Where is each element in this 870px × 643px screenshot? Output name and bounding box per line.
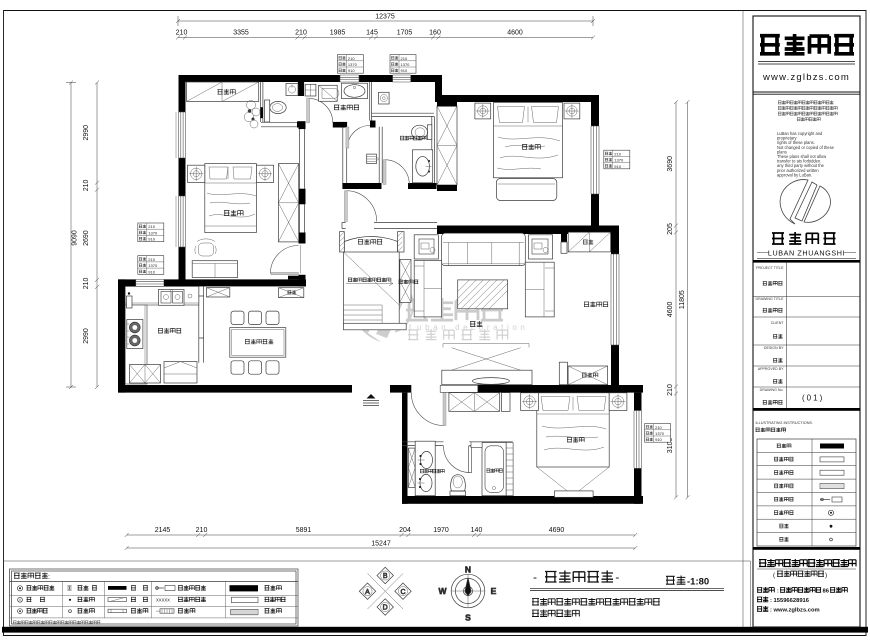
- svg-text:140: 140: [471, 527, 483, 534]
- svg-text:CLIENT: CLIENT: [771, 321, 785, 325]
- svg-text:XXXXX: XXXXX: [156, 598, 170, 603]
- svg-text:3690: 3690: [667, 156, 674, 172]
- svg-text:4600: 4600: [507, 30, 523, 37]
- svg-text:160: 160: [429, 30, 441, 37]
- svg-text:910: 910: [148, 237, 155, 242]
- svg-text:1370: 1370: [148, 263, 158, 268]
- svg-text:PROJECT TITLE: PROJECT TITLE: [756, 266, 784, 270]
- svg-text:DRAWING No.: DRAWING No.: [760, 388, 784, 392]
- svg-text:2990: 2990: [83, 125, 90, 141]
- svg-text:3355: 3355: [233, 30, 249, 37]
- svg-text:B: B: [383, 573, 388, 580]
- svg-text:2145: 2145: [155, 527, 171, 534]
- svg-text:D: D: [383, 605, 388, 612]
- svg-text:1370: 1370: [348, 62, 358, 67]
- svg-text:Luban decoration: Luban decoration: [409, 323, 528, 332]
- svg-text:N: N: [465, 565, 471, 575]
- svg-text:(01): (01): [802, 394, 824, 403]
- svg-text:210: 210: [655, 425, 662, 430]
- svg-text:210: 210: [295, 30, 307, 37]
- svg-text:2990: 2990: [83, 328, 90, 344]
- svg-text:210: 210: [196, 527, 208, 534]
- svg-text:910: 910: [148, 269, 155, 274]
- svg-text:205: 205: [667, 223, 674, 235]
- svg-text:210: 210: [401, 56, 408, 61]
- svg-text:LUBAN ZHUANGSHI: LUBAN ZHUANGSHI: [768, 249, 845, 258]
- svg-text:910: 910: [348, 68, 355, 73]
- svg-text:1370: 1370: [614, 158, 624, 163]
- svg-text:1970: 1970: [433, 527, 449, 534]
- svg-text:210: 210: [667, 384, 674, 396]
- svg-text:www.zglbzs.com: www.zglbzs.com: [762, 72, 850, 83]
- svg-text::: :: [48, 574, 50, 581]
- svg-text:910: 910: [401, 68, 408, 73]
- svg-text:9090: 9090: [72, 230, 79, 246]
- svg-text:1370: 1370: [655, 431, 665, 436]
- svg-text:210: 210: [148, 224, 155, 229]
- svg-text:86: 86: [823, 589, 830, 595]
- svg-text:ILLUSTRATING INSTRUCTIONS.: ILLUSTRATING INSTRUCTIONS.: [756, 421, 814, 425]
- svg-text:W: W: [438, 586, 447, 596]
- svg-text:C: C: [400, 589, 405, 596]
- svg-text:-: -: [612, 570, 619, 584]
- svg-text:A: A: [365, 589, 370, 596]
- svg-text:1705: 1705: [397, 30, 413, 37]
- svg-text:210: 210: [176, 30, 188, 37]
- svg-text:145: 145: [366, 30, 378, 37]
- svg-text:12375: 12375: [375, 14, 395, 21]
- svg-text:1370: 1370: [148, 230, 158, 235]
- svg-text:APPROVED BY: APPROVED BY: [758, 367, 784, 371]
- svg-text:210: 210: [83, 179, 90, 191]
- svg-text:2690: 2690: [83, 230, 90, 246]
- svg-text::: :: [777, 589, 779, 595]
- svg-text:210: 210: [83, 277, 90, 289]
- svg-text:4690: 4690: [549, 527, 565, 534]
- svg-text:-: -: [533, 570, 540, 584]
- svg-text:E: E: [491, 586, 497, 596]
- svg-text:DRAWING TITLE: DRAWING TITLE: [756, 297, 785, 301]
- svg-text:11805: 11805: [679, 290, 686, 309]
- svg-text:DESIGN BY: DESIGN BY: [764, 346, 784, 350]
- svg-text:210: 210: [348, 56, 355, 61]
- svg-text::: :: [784, 429, 785, 434]
- svg-text:): ): [825, 572, 827, 579]
- svg-text:5891: 5891: [296, 527, 312, 534]
- svg-text:: www.zglbzs.com: : www.zglbzs.com: [770, 608, 820, 614]
- svg-text:210: 210: [148, 257, 155, 262]
- svg-text:approval by LuBan.: approval by LuBan.: [777, 172, 812, 177]
- svg-text:4600: 4600: [667, 302, 674, 318]
- svg-text:204: 204: [399, 527, 411, 534]
- svg-text:910: 910: [614, 164, 621, 169]
- svg-text:-1:80: -1:80: [687, 577, 709, 588]
- svg-text:15247: 15247: [371, 541, 391, 548]
- svg-text:910: 910: [655, 437, 662, 442]
- svg-text:210: 210: [614, 151, 621, 156]
- svg-text:1985: 1985: [330, 30, 346, 37]
- svg-text:S: S: [465, 613, 471, 623]
- svg-text:1370: 1370: [401, 62, 411, 67]
- svg-text:: 15596628916: : 15596628916: [770, 598, 810, 604]
